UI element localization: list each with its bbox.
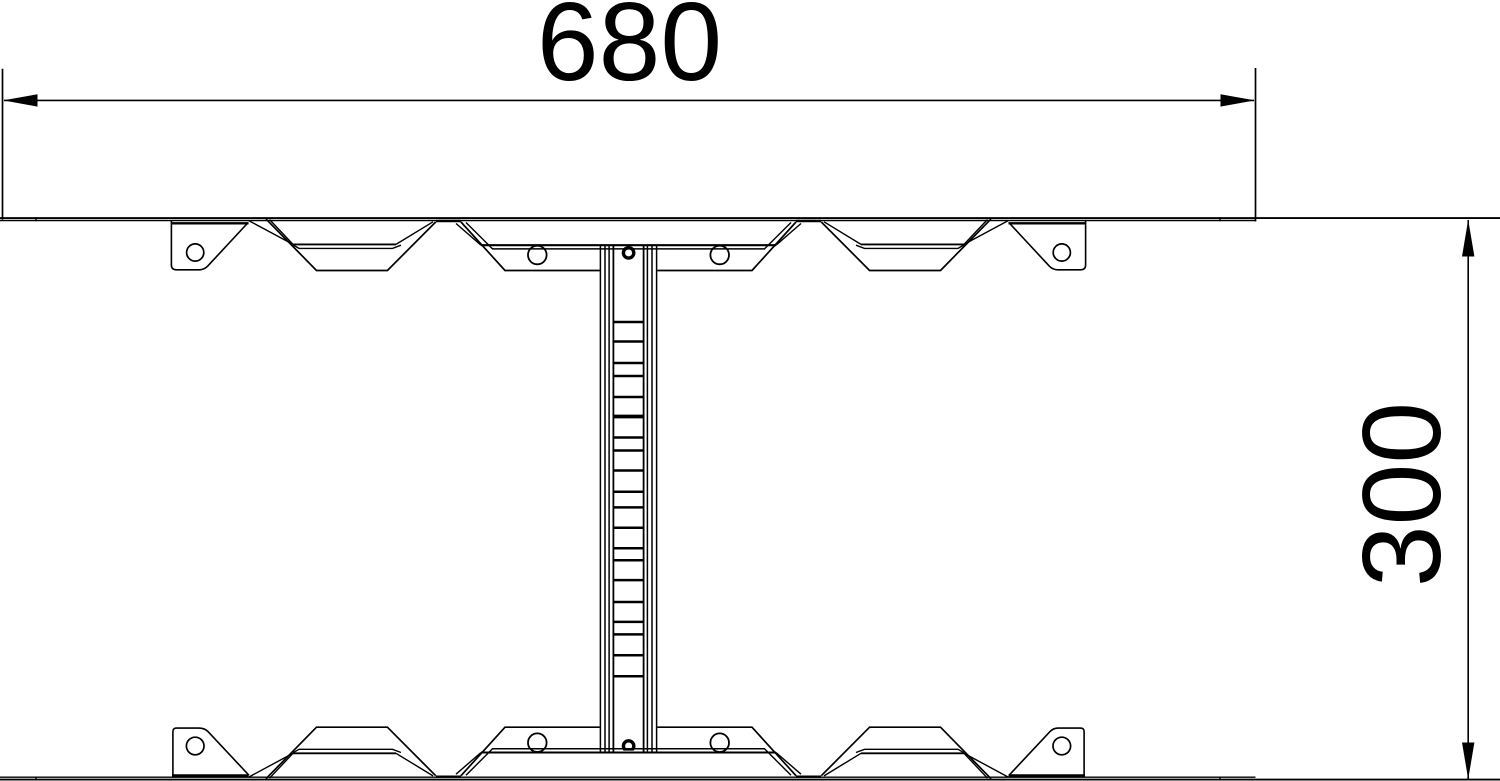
svg-text:680: 680 <box>537 0 722 104</box>
svg-text:300: 300 <box>1340 402 1464 587</box>
